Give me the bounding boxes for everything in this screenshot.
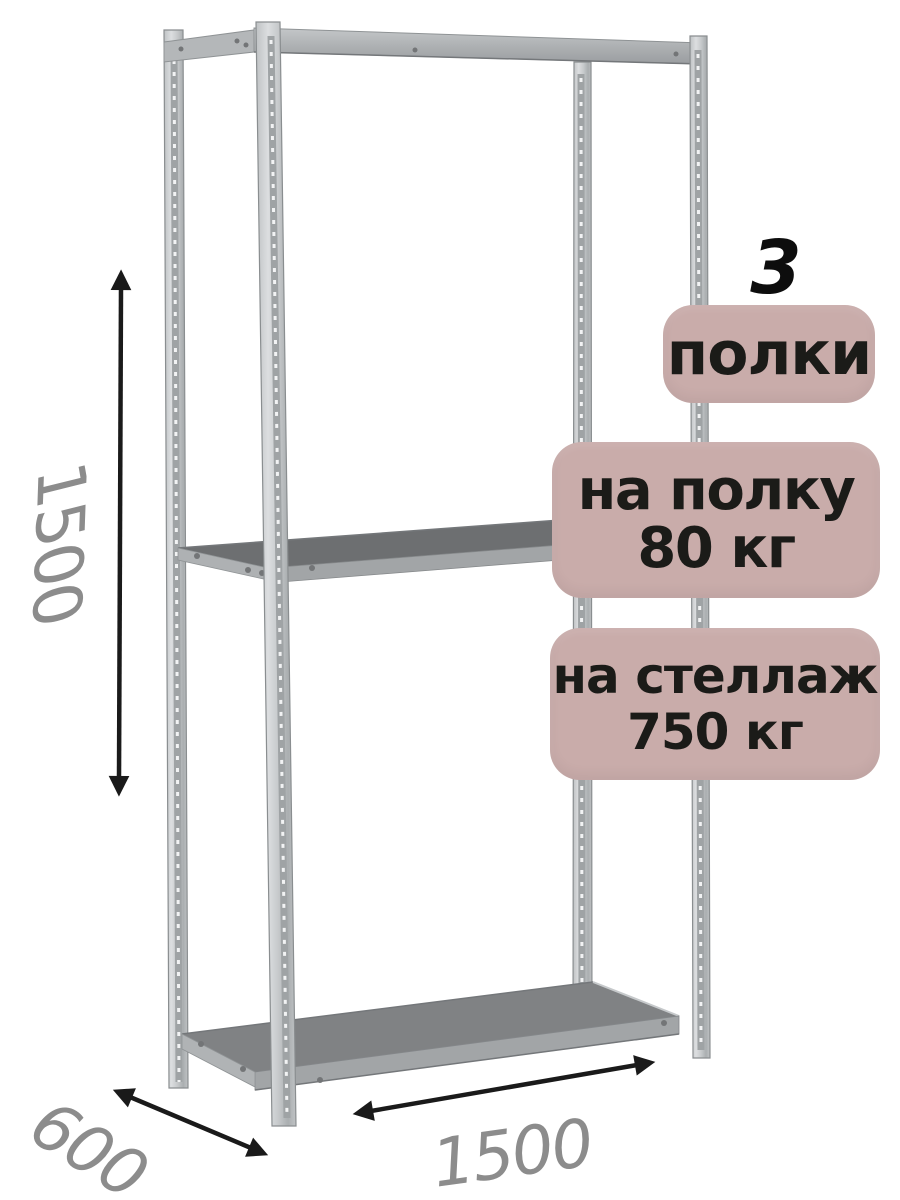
- rack-load-value: 750 кг: [627, 704, 803, 760]
- shelf-load-badge: на полку 80 кг: [552, 442, 880, 598]
- width-arrow: [371, 1065, 637, 1111]
- top-shelf: [164, 28, 702, 64]
- depth-arrow: [130, 1097, 251, 1148]
- product-image: 1500 600 1500 3 полки на полку 80 кг на …: [0, 0, 900, 1200]
- rack-load-badge: на стеллаж 750 кг: [550, 628, 880, 780]
- height-dimension-label: 1500: [18, 425, 98, 663]
- bottom-shelf: [182, 982, 679, 1090]
- rack-load-title: на стеллаж: [553, 648, 878, 704]
- rack-illustration: [0, 0, 900, 1200]
- shelf-count-badge: полки: [663, 305, 875, 403]
- shelf-load-value: 80 кг: [637, 520, 794, 578]
- height-arrow: [119, 288, 121, 778]
- shelf-load-title: на полку: [578, 462, 855, 520]
- shelf-count-unit-label: полки: [667, 319, 871, 389]
